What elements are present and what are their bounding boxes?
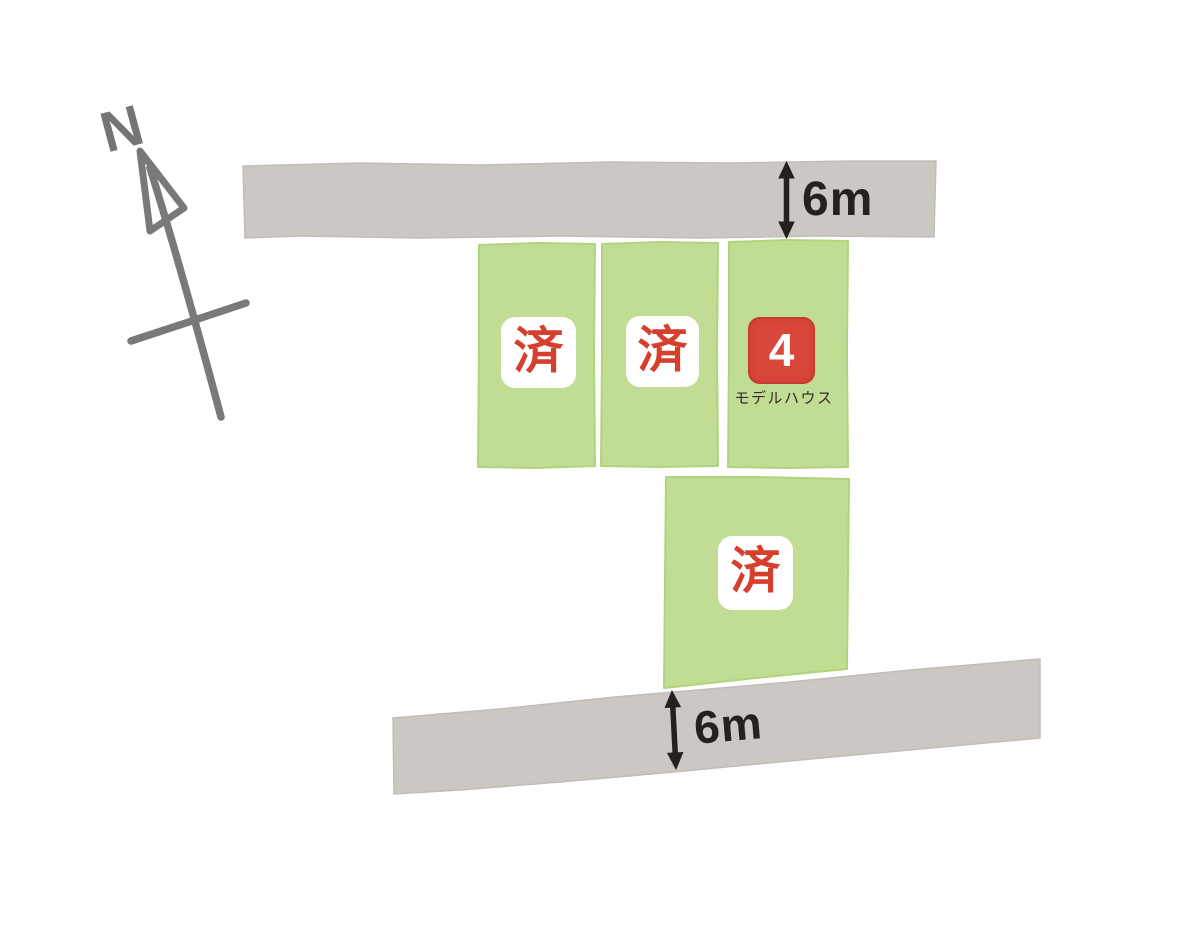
plot-3-sold-badge: 済 [718,536,793,610]
top-road-width-label: 6m [802,176,873,224]
plot-4-number-label: 4 [769,327,795,373]
lot-map: N 6m 6m 済 済 [0,0,1200,938]
plot-1-sold-badge: 済 [501,317,576,388]
plot-1-sold-label: 済 [514,326,564,376]
bottom-road-width-label: 6m [692,699,764,751]
north-compass-icon: N [94,93,246,417]
plot-3-sold-label: 済 [731,546,781,596]
plot-2-sold-badge: 済 [626,316,699,387]
lot-map-drawing: N [0,0,1200,938]
plot-4-model-house-caption: モデルハウス [723,389,845,407]
plot-4-number-badge: 4 [748,317,815,384]
plot-2-sold-label: 済 [638,325,688,375]
